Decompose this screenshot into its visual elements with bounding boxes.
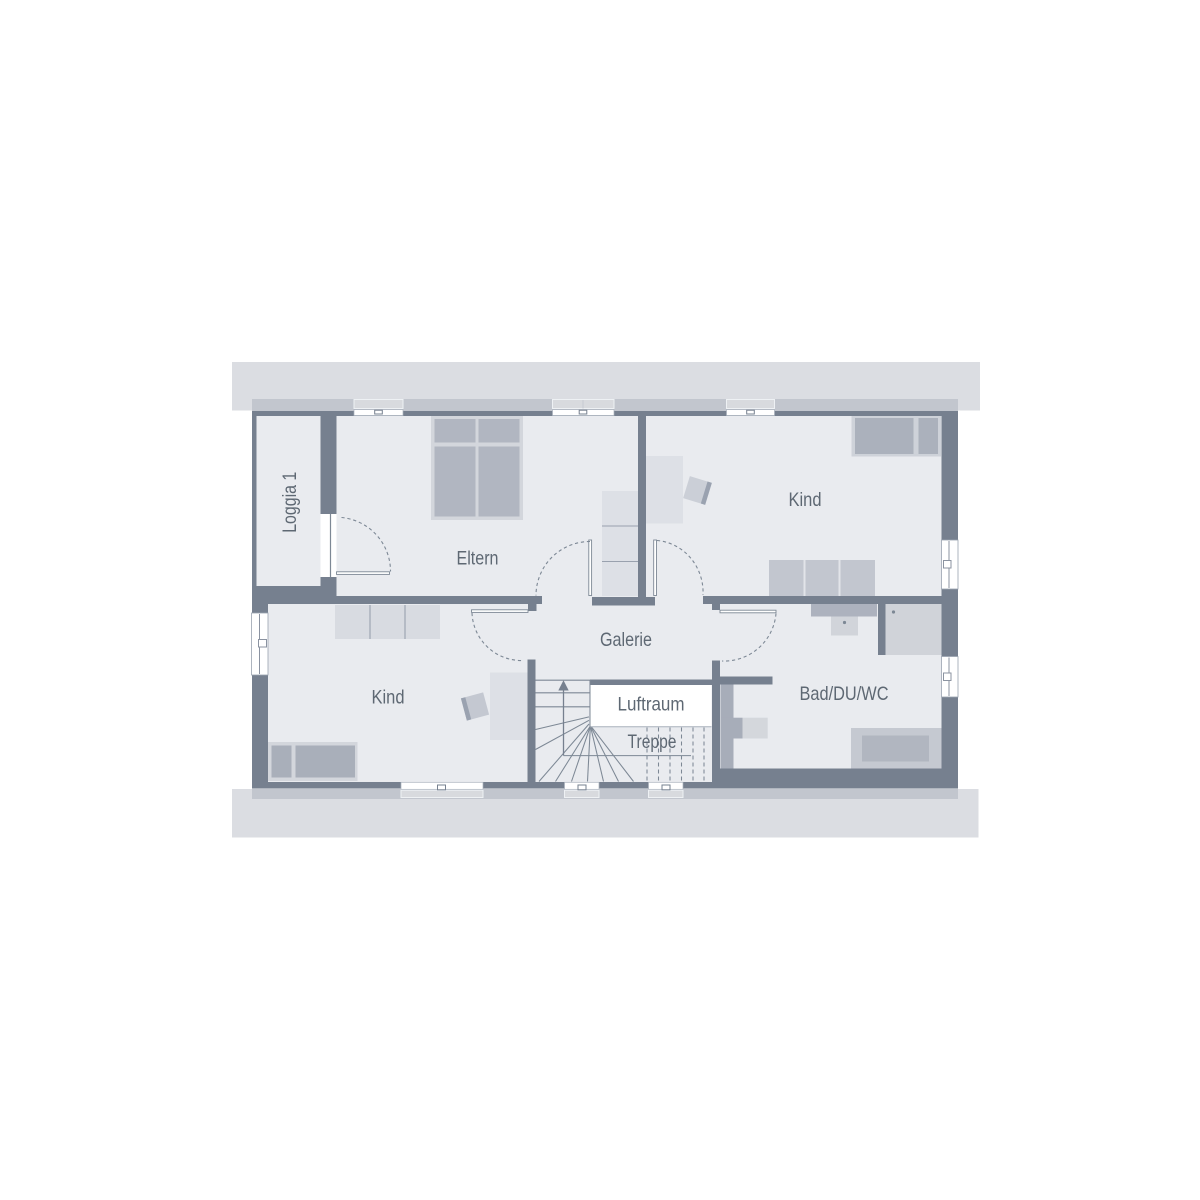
svg-text:Eltern: Eltern [457,547,499,569]
svg-text:Loggia 1: Loggia 1 [279,472,301,533]
svg-text:Kind: Kind [789,489,822,511]
svg-text:Treppe: Treppe [628,731,677,753]
svg-text:Galerie: Galerie [600,629,652,651]
svg-text:Bad/DU/WC: Bad/DU/WC [800,683,889,705]
svg-text:Kind: Kind [372,687,405,709]
svg-text:Luftraum: Luftraum [618,694,685,716]
